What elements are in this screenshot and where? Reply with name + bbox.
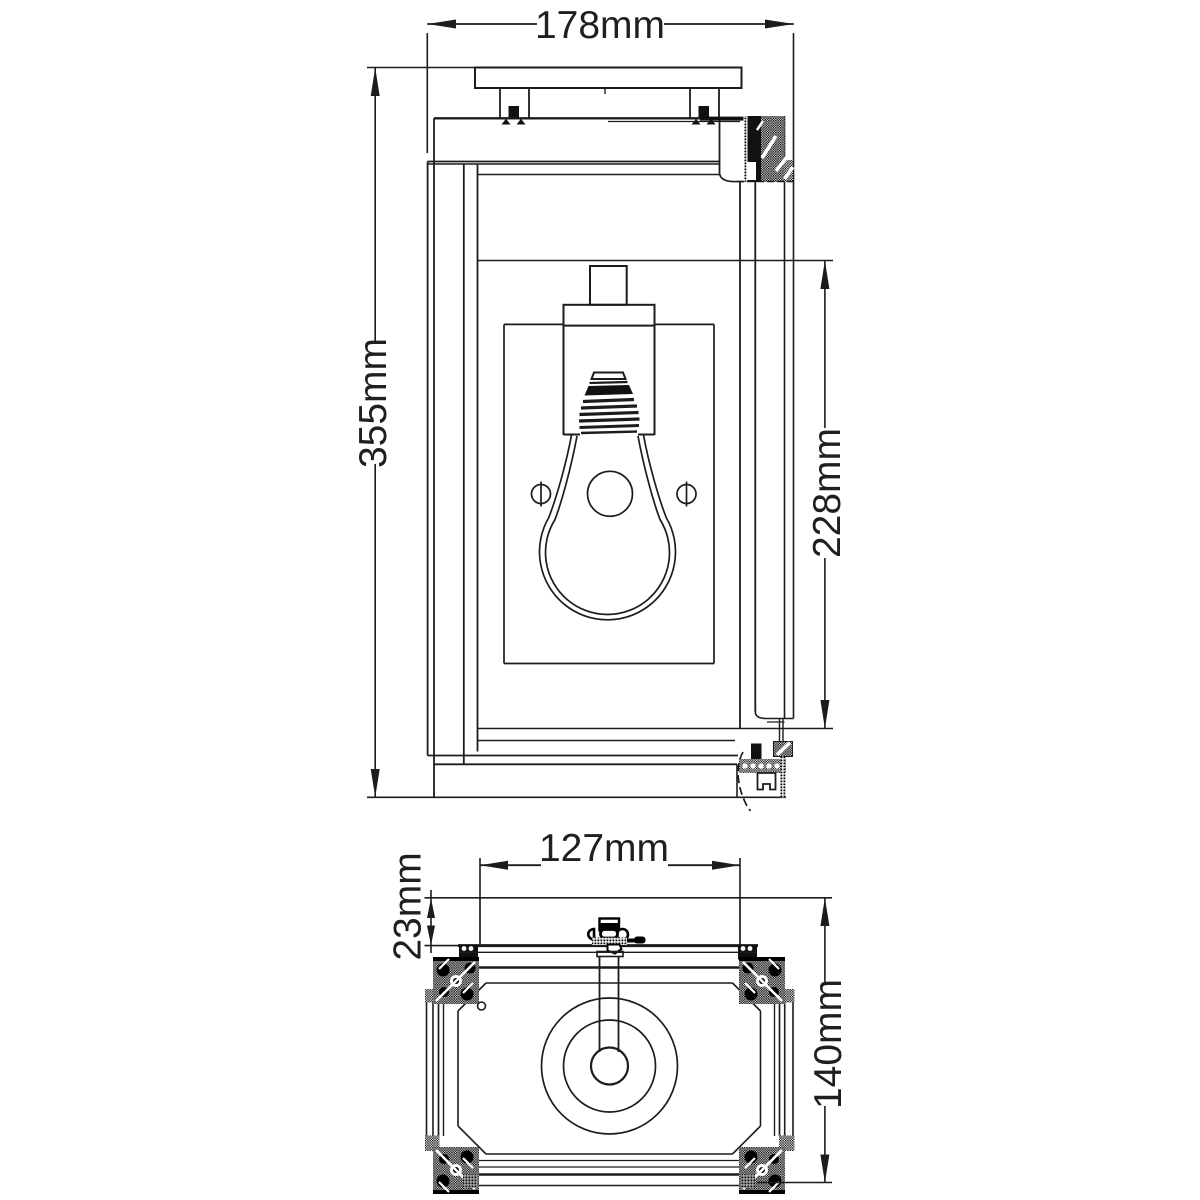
svg-text:178mm: 178mm [535,4,665,47]
svg-text:355mm: 355mm [352,338,395,468]
svg-text:140mm: 140mm [807,979,850,1109]
svg-text:228mm: 228mm [806,428,849,558]
svg-text:127mm: 127mm [539,827,669,870]
svg-text:23mm: 23mm [387,852,430,960]
